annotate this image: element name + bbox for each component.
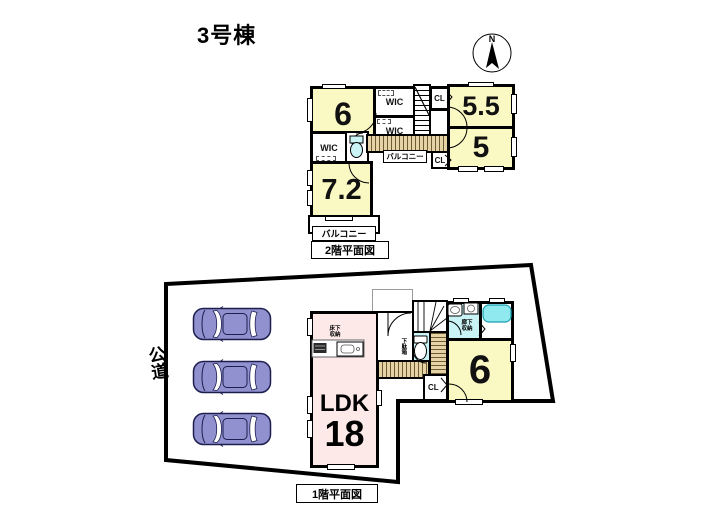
window-mark	[307, 98, 313, 122]
shoe-cabinet-label: 下駄箱	[400, 336, 406, 356]
window-mark	[307, 190, 313, 206]
ldk-label-group: LDK 18	[312, 392, 377, 452]
bathroom	[479, 301, 514, 341]
room-2f-bedroom5: 5	[447, 126, 515, 170]
room-label: 5	[473, 131, 490, 165]
caption-2f: 2階平面図	[311, 241, 389, 259]
window-mark	[453, 298, 469, 303]
room-label: CL	[428, 383, 439, 392]
car-top-view	[194, 307, 271, 342]
room-1f-bedroom6: 6	[446, 338, 514, 403]
window-mark	[376, 390, 382, 406]
room-label: 6	[469, 348, 491, 393]
window-mark	[307, 318, 313, 336]
window-mark	[325, 216, 353, 221]
underfloor-storage-label: 床下収納	[327, 326, 343, 339]
window-mark	[511, 94, 517, 114]
room-2f-bedroom7-2: 7.2	[310, 161, 373, 219]
entrance-hall	[376, 311, 415, 364]
room-label: WIC	[386, 97, 404, 107]
car-top-view	[194, 412, 271, 447]
balcony-south-label: バルコニー	[312, 226, 376, 241]
room-1f-closet: CL	[423, 374, 448, 401]
hall-storage-label: 廊下収納	[459, 320, 475, 333]
closet-dash-mark	[377, 119, 391, 124]
room-label: 5.5	[462, 91, 500, 122]
window-mark	[489, 298, 505, 303]
room-label: 6	[334, 96, 352, 133]
parked-car	[192, 359, 272, 395]
ldk-size-label: 18	[312, 416, 377, 452]
room-label: CL	[435, 156, 446, 165]
label-text: バルコニー	[386, 151, 423, 162]
closet-dash-mark	[316, 156, 336, 161]
window-mark	[307, 396, 313, 414]
entrance-porch	[372, 289, 413, 313]
parked-car	[192, 411, 272, 447]
window-mark	[455, 399, 483, 405]
balcony-center-label: バルコニー	[383, 150, 427, 163]
caption-text: 1階平面図	[312, 486, 362, 502]
window-mark	[510, 344, 516, 362]
room-label: 7.2	[321, 174, 361, 207]
caption-text: 2階平面図	[325, 242, 375, 258]
road-label: 公道	[141, 344, 171, 381]
car-top-view	[194, 360, 271, 395]
closet-dash-mark	[378, 90, 394, 96]
room-label: WIC	[320, 143, 338, 153]
window-mark	[458, 166, 478, 172]
window-mark	[327, 464, 355, 470]
window-mark	[468, 82, 494, 87]
label-text: バルコニー	[322, 227, 367, 240]
caption-1f: 1階平面図	[296, 484, 378, 503]
parked-car	[192, 306, 272, 342]
window-mark	[511, 137, 517, 157]
staircase-1f	[412, 300, 448, 333]
room-2f-closet-mid: CL	[431, 151, 449, 169]
window-mark	[322, 84, 346, 89]
floor-plan-sheet: 3号棟 6 WIC WIC CL 5.5	[0, 0, 705, 525]
room-label: CL	[434, 94, 445, 103]
room-2f-bedroom5-5: 5.5	[447, 84, 515, 129]
window-mark	[484, 166, 504, 172]
window-mark	[307, 420, 313, 438]
compass-north-label: N	[482, 34, 502, 44]
window-mark	[307, 170, 313, 186]
